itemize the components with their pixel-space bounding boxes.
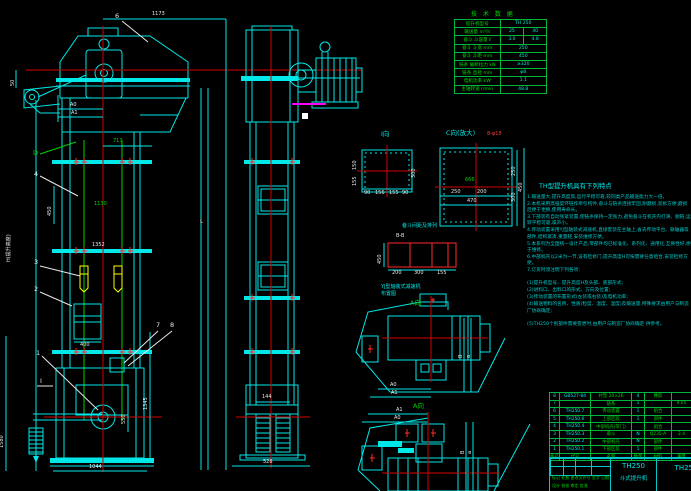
bom-qty <box>631 423 644 430</box>
dim-a0: A0 <box>70 103 77 108</box>
bucket-dim-155: 155 <box>437 271 447 276</box>
bom-weight <box>671 408 691 415</box>
feature-line: 1.输送量大,提升高度高,运行平稳可靠,较同类产品输送能力大一倍。 <box>527 195 691 201</box>
title-block-product: 斗式提升机 <box>611 474 656 482</box>
table-row: 2 TH250.2 中部机壳 N 部件 <box>550 438 691 446</box>
title-block-name-cell: TH250 斗式提升机 <box>610 458 657 491</box>
bucket-grid-section: B-B <box>396 234 405 239</box>
dim-1345: 1345 <box>144 397 149 410</box>
bom-code <box>559 401 590 408</box>
table-row: 链条 破断拉力 kN ≥320 <box>455 60 546 68</box>
table-row: 6 TH250.7 传动装置 1 组合 <box>550 407 691 415</box>
cview-dim-666: 666 <box>465 178 475 183</box>
tech-table-title: 技 术 数 据 <box>471 9 515 18</box>
bucket-dim-450: 450 <box>378 254 383 264</box>
cview-dim-250b: 250 <box>451 190 461 195</box>
parts-list: 8 GB527-84 衬垫 20×26 4 橡胶 7 链条 1 9.05 6 T… <box>549 392 691 461</box>
features-title: TH型提升机具有下列特点 <box>539 181 691 190</box>
dim-1044: 1044 <box>89 465 102 470</box>
bom-qty: 1 <box>631 446 644 453</box>
middle-view-linework <box>232 26 362 468</box>
feature-line: (2)进料口、出料口的形式、方向及位置; <box>527 288 691 294</box>
title-block-sig-row: 标记 处数 更改文件号 签字 日期 <box>552 476 609 480</box>
detail-a-bottom-linework <box>358 412 530 491</box>
bom-material: 组合 <box>644 408 671 415</box>
feature-line: 4.传动装置采用YJ型轴装式减速机,直接套装在主轴上,省去传动平台、联轴器等部件… <box>527 228 691 240</box>
table-row: 畚斗 斗容量 ℓ 3.0 4.8 <box>455 35 546 43</box>
cview-dim-470: 470 <box>467 199 477 204</box>
bom-qty: N <box>631 431 644 438</box>
bucket-dim-200: 200 <box>392 271 402 276</box>
bom-weight: 2.4 <box>671 431 691 438</box>
bom-no: 5 <box>550 416 559 423</box>
features-block: TH型提升机具有下列特点 1.输送量大,提升高度高,运行平稳可靠,较同类产品输送… <box>527 181 691 329</box>
iview-dim-155l: 155 <box>353 176 358 186</box>
abot-dim-a1: A1 <box>396 408 403 413</box>
bom-qty: 1 <box>631 408 644 415</box>
bom-name: 链条 <box>590 401 631 408</box>
bom-no: 2 <box>550 439 559 446</box>
abot-dim-a0: A0 <box>394 416 401 421</box>
dim-450: 450 <box>48 206 53 216</box>
dim-50: 50 <box>11 80 16 86</box>
tech-value: 1.1 <box>500 77 547 84</box>
cview-dim-250r: 250 <box>512 166 517 176</box>
table-row: 链条 直径 mm φ8 <box>455 68 546 76</box>
feature-line: 3.下部装有自动张紧装置,使链条保持一定张力,避免畚斗在机壳内打滑、脱链,运转平… <box>527 215 691 227</box>
detail-a-top-linework <box>356 294 505 397</box>
table-row: 主轴转速 r/min 48.8 <box>455 85 546 93</box>
cview-dim-300r: 300 <box>512 192 517 202</box>
dim-550: 550 <box>122 414 127 424</box>
section-marker-i: I <box>40 378 42 385</box>
left-view-linework <box>6 19 362 472</box>
iview-dim-155: 155 <box>389 191 399 196</box>
dim-1352: 1352 <box>92 243 105 248</box>
tech-label: 输送量 m³/h <box>455 28 500 35</box>
tech-label: 畚斗 斗容量 ℓ <box>455 36 500 43</box>
iview-dim-156: 156 <box>375 191 385 196</box>
bom-code: TH250.1 <box>559 446 590 453</box>
tech-value: 250 <box>500 45 547 52</box>
bom-no: 6 <box>550 408 559 415</box>
feature-line: 6.中部机壳以2米为一节,设有检修门,提升高度H可按需要任意组合,安装检修方便。 <box>527 255 691 267</box>
tech-label: 畚斗 斗距 mm <box>455 53 500 60</box>
bom-qty: N <box>631 439 644 446</box>
dim-713: 713 <box>113 139 123 144</box>
tech-value: 450 <box>500 53 547 60</box>
cview-dim-200: 200 <box>477 190 487 195</box>
yj-note-line2: 布置图 <box>381 292 396 297</box>
dim-h-height: H(提升高度) <box>7 234 12 262</box>
table-row: 电机功率 kW 1.1 <box>455 76 546 84</box>
label-d: D <box>33 150 38 157</box>
title-block-model: TH250 <box>611 462 656 470</box>
bom-no: 8 <box>550 393 559 400</box>
tech-label: 提升机型号 <box>455 20 500 27</box>
bom-weight: 9.05 <box>671 401 691 408</box>
tech-value: ≥320 <box>500 61 547 68</box>
bom-weight <box>671 446 691 453</box>
table-row: 4 TH250.4 中部机壳(带门) 组合 <box>550 422 691 430</box>
bom-no: 4 <box>550 423 559 430</box>
abot-dim-b: B <box>461 451 466 454</box>
feature-line: 5.本系列为全国统一设计产品,零部件均已标准化、系列化、通用化,互换性好,便于维… <box>527 242 691 254</box>
bom-name: 下部区段 <box>590 446 631 453</box>
bom-qty: 1 <box>631 416 644 423</box>
tech-label: 畚斗 斗宽 mm <box>455 45 500 52</box>
cad-canvas: 6 1173 50 A0 A1 D 4 713 450 1130 1352 H(… <box>0 0 691 491</box>
bom-material: 部件 <box>644 446 671 453</box>
abot-dim-a: a <box>468 451 473 454</box>
table-row: 提升机型号 TH 250 <box>455 20 546 27</box>
bom-code: TH250.3 <box>559 431 590 438</box>
dim-a1: A1 <box>71 111 78 116</box>
part-label-6: 6 <box>115 13 119 20</box>
view-label-i: I向 <box>381 131 389 138</box>
bom-code: GB527-84 <box>559 393 590 400</box>
title-block: 标记 处数 更改文件号 签字 日期 设计 校核 审定 批准 TH250 斗式提升… <box>549 457 691 491</box>
title-block-drawing-no-cell: TH250 <box>656 458 691 491</box>
part-label-7: 7 <box>156 322 160 329</box>
part-label-8: 8 <box>170 322 174 329</box>
bom-material <box>644 401 671 408</box>
feature-line: (5)TH250个别部件需要变更时,由用户与制造厂协商确定 供参考。 <box>527 322 691 328</box>
iview-dim-150: 150 <box>353 160 358 170</box>
bom-material: 部件 <box>644 416 671 423</box>
bucket-dim-300: 300 <box>414 271 424 276</box>
tech-value: 48.8 <box>500 86 547 93</box>
bom-weight <box>671 423 691 430</box>
atop-dim-a1: A1 <box>391 391 398 396</box>
dim-400: 400 <box>80 343 90 348</box>
title-block-grid <box>550 458 611 476</box>
bom-name: 中部机壳 <box>590 439 631 446</box>
bom-no: 3 <box>550 431 559 438</box>
table-row: 3 TH250.3 畚斗 N Q235-A 2.4 <box>550 430 691 438</box>
tech-value: 4.8 <box>523 36 546 43</box>
view-label-a-top: A向 <box>410 300 421 307</box>
feature-line: (1)提升机型号、提升高度H及头部、底部形式; <box>527 281 691 287</box>
table-row: 畚斗 斗距 mm 450 <box>455 52 546 60</box>
bom-name: 中部机壳(带门) <box>590 423 631 430</box>
iview-dim-300: 300 <box>412 168 417 178</box>
tech-label: 链条 直径 mm <box>455 69 500 76</box>
bom-qty: 1 <box>631 401 644 408</box>
atop-dim-a: a <box>467 355 472 358</box>
table-row: 畚斗 斗宽 mm 250 <box>455 44 546 52</box>
bom-material: 部件 <box>644 439 671 446</box>
title-block-sig-row2: 设计 校核 审定 批准 <box>552 484 588 488</box>
tech-table: 提升机型号 TH 250 输送量 m³/h 25 40 畚斗 斗容量 ℓ 3.0… <box>454 19 547 94</box>
bom-weight <box>671 393 691 400</box>
table-row: 5 TH250.6 上部区段 1 部件 <box>550 415 691 423</box>
bucket-grid-title: 畚斗间距及排列 <box>402 224 437 229</box>
bom-qty: 4 <box>631 393 644 400</box>
feature-line: 2.本机采用高强度环链作牵引构件,畚斗与链条连接牢固,耐磨损,装拆方便,磨损后便… <box>527 202 691 214</box>
bom-weight <box>671 439 691 446</box>
bom-material: 橡胶 <box>644 393 671 400</box>
bom-name: 上部区段 <box>590 416 631 423</box>
cview-hole-callout: 8-φ18 <box>487 132 502 137</box>
table-row: 8 GB527-84 衬垫 20×26 4 橡胶 <box>550 393 691 400</box>
iview-dim-90b: 90 <box>402 191 408 196</box>
bom-weight <box>671 416 691 423</box>
tech-label: 主轴转速 r/min <box>455 86 500 93</box>
view-label-c: C向(放大) <box>446 130 475 137</box>
bom-material: 组合 <box>644 423 671 430</box>
bom-code: TH250.6 <box>559 416 590 423</box>
feature-line: (3)传动装置的布置形式(左装或右装)及电机功率; <box>527 295 691 301</box>
dim-1580: 1580 <box>0 435 5 448</box>
cview-dim-450r: 450 <box>519 182 524 192</box>
part-label-2: 2 <box>34 286 38 293</box>
bom-name: 畚斗 <box>590 431 631 438</box>
table-row: 1 TH250.1 下部区段 1 部件 <box>550 445 691 453</box>
bom-no: 7 <box>550 401 559 408</box>
tech-value: φ8 <box>500 69 547 76</box>
feature-line: (4)输送物料的名称、性质(粒度、温度、湿度)及输送量,特殊要求由用户与制造厂协… <box>527 302 691 314</box>
atop-dim-b: B <box>459 355 464 358</box>
dim-528: 528 <box>263 460 273 465</box>
tech-value: 40 <box>523 28 546 35</box>
view-label-a-bottom: A向 <box>413 403 424 410</box>
bom-code: TH250.4 <box>559 423 590 430</box>
yj-note-line1: YJ型轴装式减速机 <box>381 285 421 290</box>
tech-value: TH 250 <box>500 20 547 27</box>
detail-c-view-linework <box>435 143 524 231</box>
atop-dim-a0: A0 <box>390 383 397 388</box>
part-label-4: 4 <box>34 171 38 178</box>
dim-1130: 1130 <box>94 202 107 207</box>
part-label-3: 3 <box>34 259 38 266</box>
title-block-drawing-no: TH250 <box>657 464 691 472</box>
dim-144: 144 <box>262 395 272 400</box>
tech-label: 链条 破断拉力 kN <box>455 61 500 68</box>
bom-code: TH250.2 <box>559 439 590 446</box>
bom-code: TH250.7 <box>559 408 590 415</box>
bom-material: Q235-A <box>644 431 671 438</box>
feature-line: 7.订货时须注明下列各项: <box>527 268 691 274</box>
bom-name: 传动装置 <box>590 408 631 415</box>
table-row: 7 链条 1 9.05 <box>550 400 691 408</box>
tech-value: 3.0 <box>500 36 524 43</box>
part-label-1: 1 <box>36 350 40 357</box>
dim-l: L <box>200 220 203 225</box>
tech-value: 25 <box>500 28 524 35</box>
dim-1173: 1173 <box>152 12 165 17</box>
table-row: 输送量 m³/h 25 40 <box>455 27 546 35</box>
iview-dim-90a: 90 <box>364 191 370 196</box>
bom-name: 衬垫 20×26 <box>590 393 631 400</box>
bom-no: 1 <box>550 446 559 453</box>
detail-bucket-grid-linework <box>384 243 456 270</box>
tech-label: 电机功率 kW <box>455 77 500 84</box>
